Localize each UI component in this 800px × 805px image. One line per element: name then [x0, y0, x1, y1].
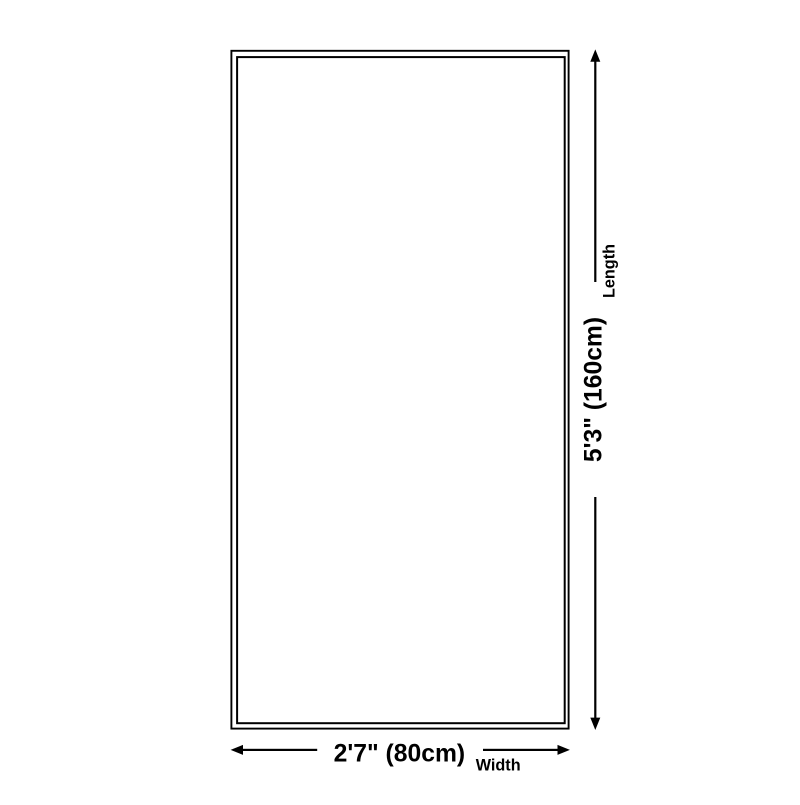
- svg-text:Width: Width: [476, 756, 521, 774]
- svg-text:2'7" (80cm): 2'7" (80cm): [334, 740, 465, 767]
- svg-text:Length: Length: [601, 244, 619, 298]
- svg-text:5'3" (160cm): 5'3" (160cm): [581, 317, 608, 462]
